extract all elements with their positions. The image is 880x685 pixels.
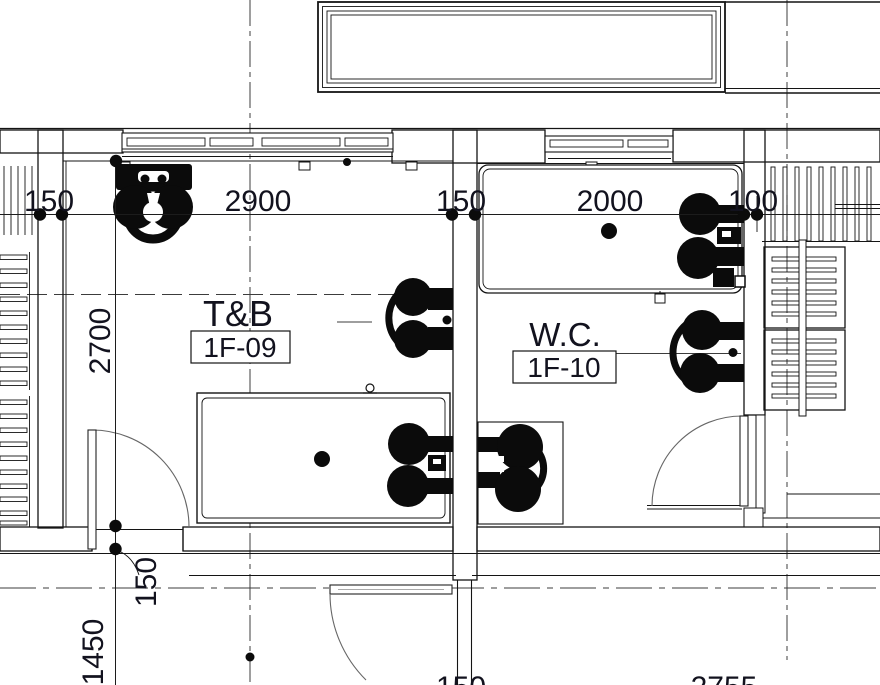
room-name-tb: T&B bbox=[203, 293, 273, 334]
floor-drain-icon bbox=[601, 223, 617, 239]
door-leaf bbox=[740, 416, 748, 506]
valve-icon bbox=[655, 294, 665, 303]
dim-room-depth: 2700 bbox=[84, 308, 117, 375]
floor-drain-icon bbox=[314, 451, 330, 467]
dim-wc-width: 2000 bbox=[577, 185, 644, 218]
wall-right-jamb bbox=[756, 415, 765, 513]
tub-faucet-icon bbox=[366, 384, 374, 392]
wall-right-threshold-box bbox=[744, 508, 763, 527]
dim-wall-bottom: 150 bbox=[130, 557, 163, 607]
jamb-marker bbox=[406, 162, 417, 170]
dim-tb-width: 2900 bbox=[225, 185, 292, 218]
dim-wall-left: 150 bbox=[24, 185, 74, 218]
dim-wall-right: 100 bbox=[728, 185, 778, 218]
jamb-marker bbox=[299, 162, 310, 170]
floor-plan-canvas: 150 2900 150 2000 100 2700 150 1450 150 … bbox=[0, 0, 880, 685]
room-label-wc: W.C. 1F-10 bbox=[513, 316, 616, 383]
room-code-tb: 1F-09 bbox=[203, 332, 276, 363]
floor-plan-page: 150 2900 150 2000 100 2700 150 1450 150 … bbox=[0, 0, 880, 685]
room-name-wc: W.C. bbox=[529, 316, 601, 353]
dim-bottom-partial-2: 2755 bbox=[691, 671, 758, 685]
door-leaf bbox=[88, 430, 96, 549]
room-code-wc: 1F-10 bbox=[527, 352, 600, 383]
dim-wall-center: 150 bbox=[436, 185, 486, 218]
dim-below-depth: 1450 bbox=[77, 619, 110, 685]
dim-bottom-partial-1: 150 bbox=[436, 671, 486, 685]
